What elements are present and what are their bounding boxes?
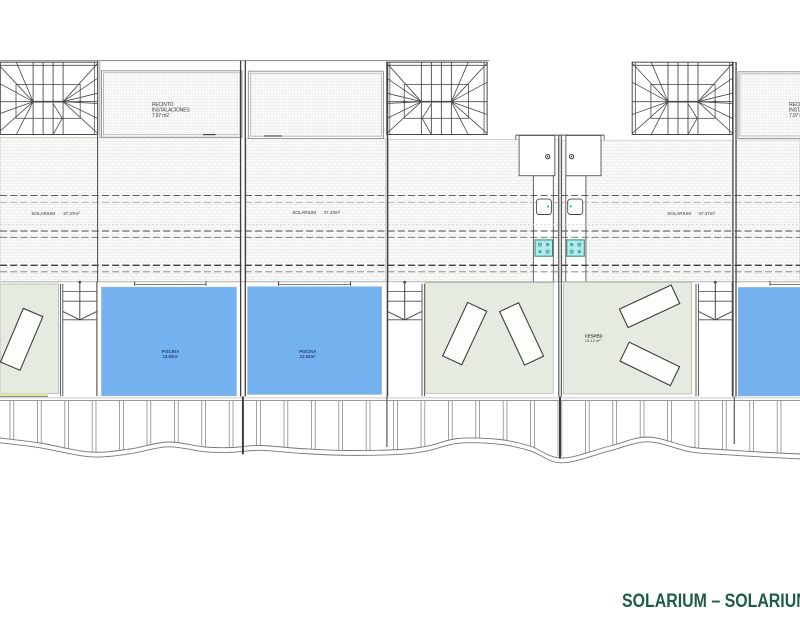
svg-text:13.92m²: 13.92m² [300,354,317,359]
svg-text:13.92m²: 13.92m² [162,354,179,359]
svg-text:SOLARIUM: SOLARIUM [667,211,691,216]
svg-text:SOLARIUM: SOLARIUM [31,211,55,216]
svg-text:SOLARIUM: SOLARIUM [292,210,316,215]
svg-text:SOLARIUM – SOLARIUM: SOLARIUM – SOLARIUM [622,590,800,612]
svg-text:7.97 m2: 7.97 m2 [152,113,169,119]
svg-text:37.37m²: 37.37m² [698,211,715,216]
svg-text:13.12 m²: 13.12 m² [585,338,601,343]
svg-text:7.97 m2: 7.97 m2 [789,113,800,119]
svg-text:37.37m²: 37.37m² [63,211,80,216]
svg-text:37.33m²: 37.33m² [324,210,341,215]
